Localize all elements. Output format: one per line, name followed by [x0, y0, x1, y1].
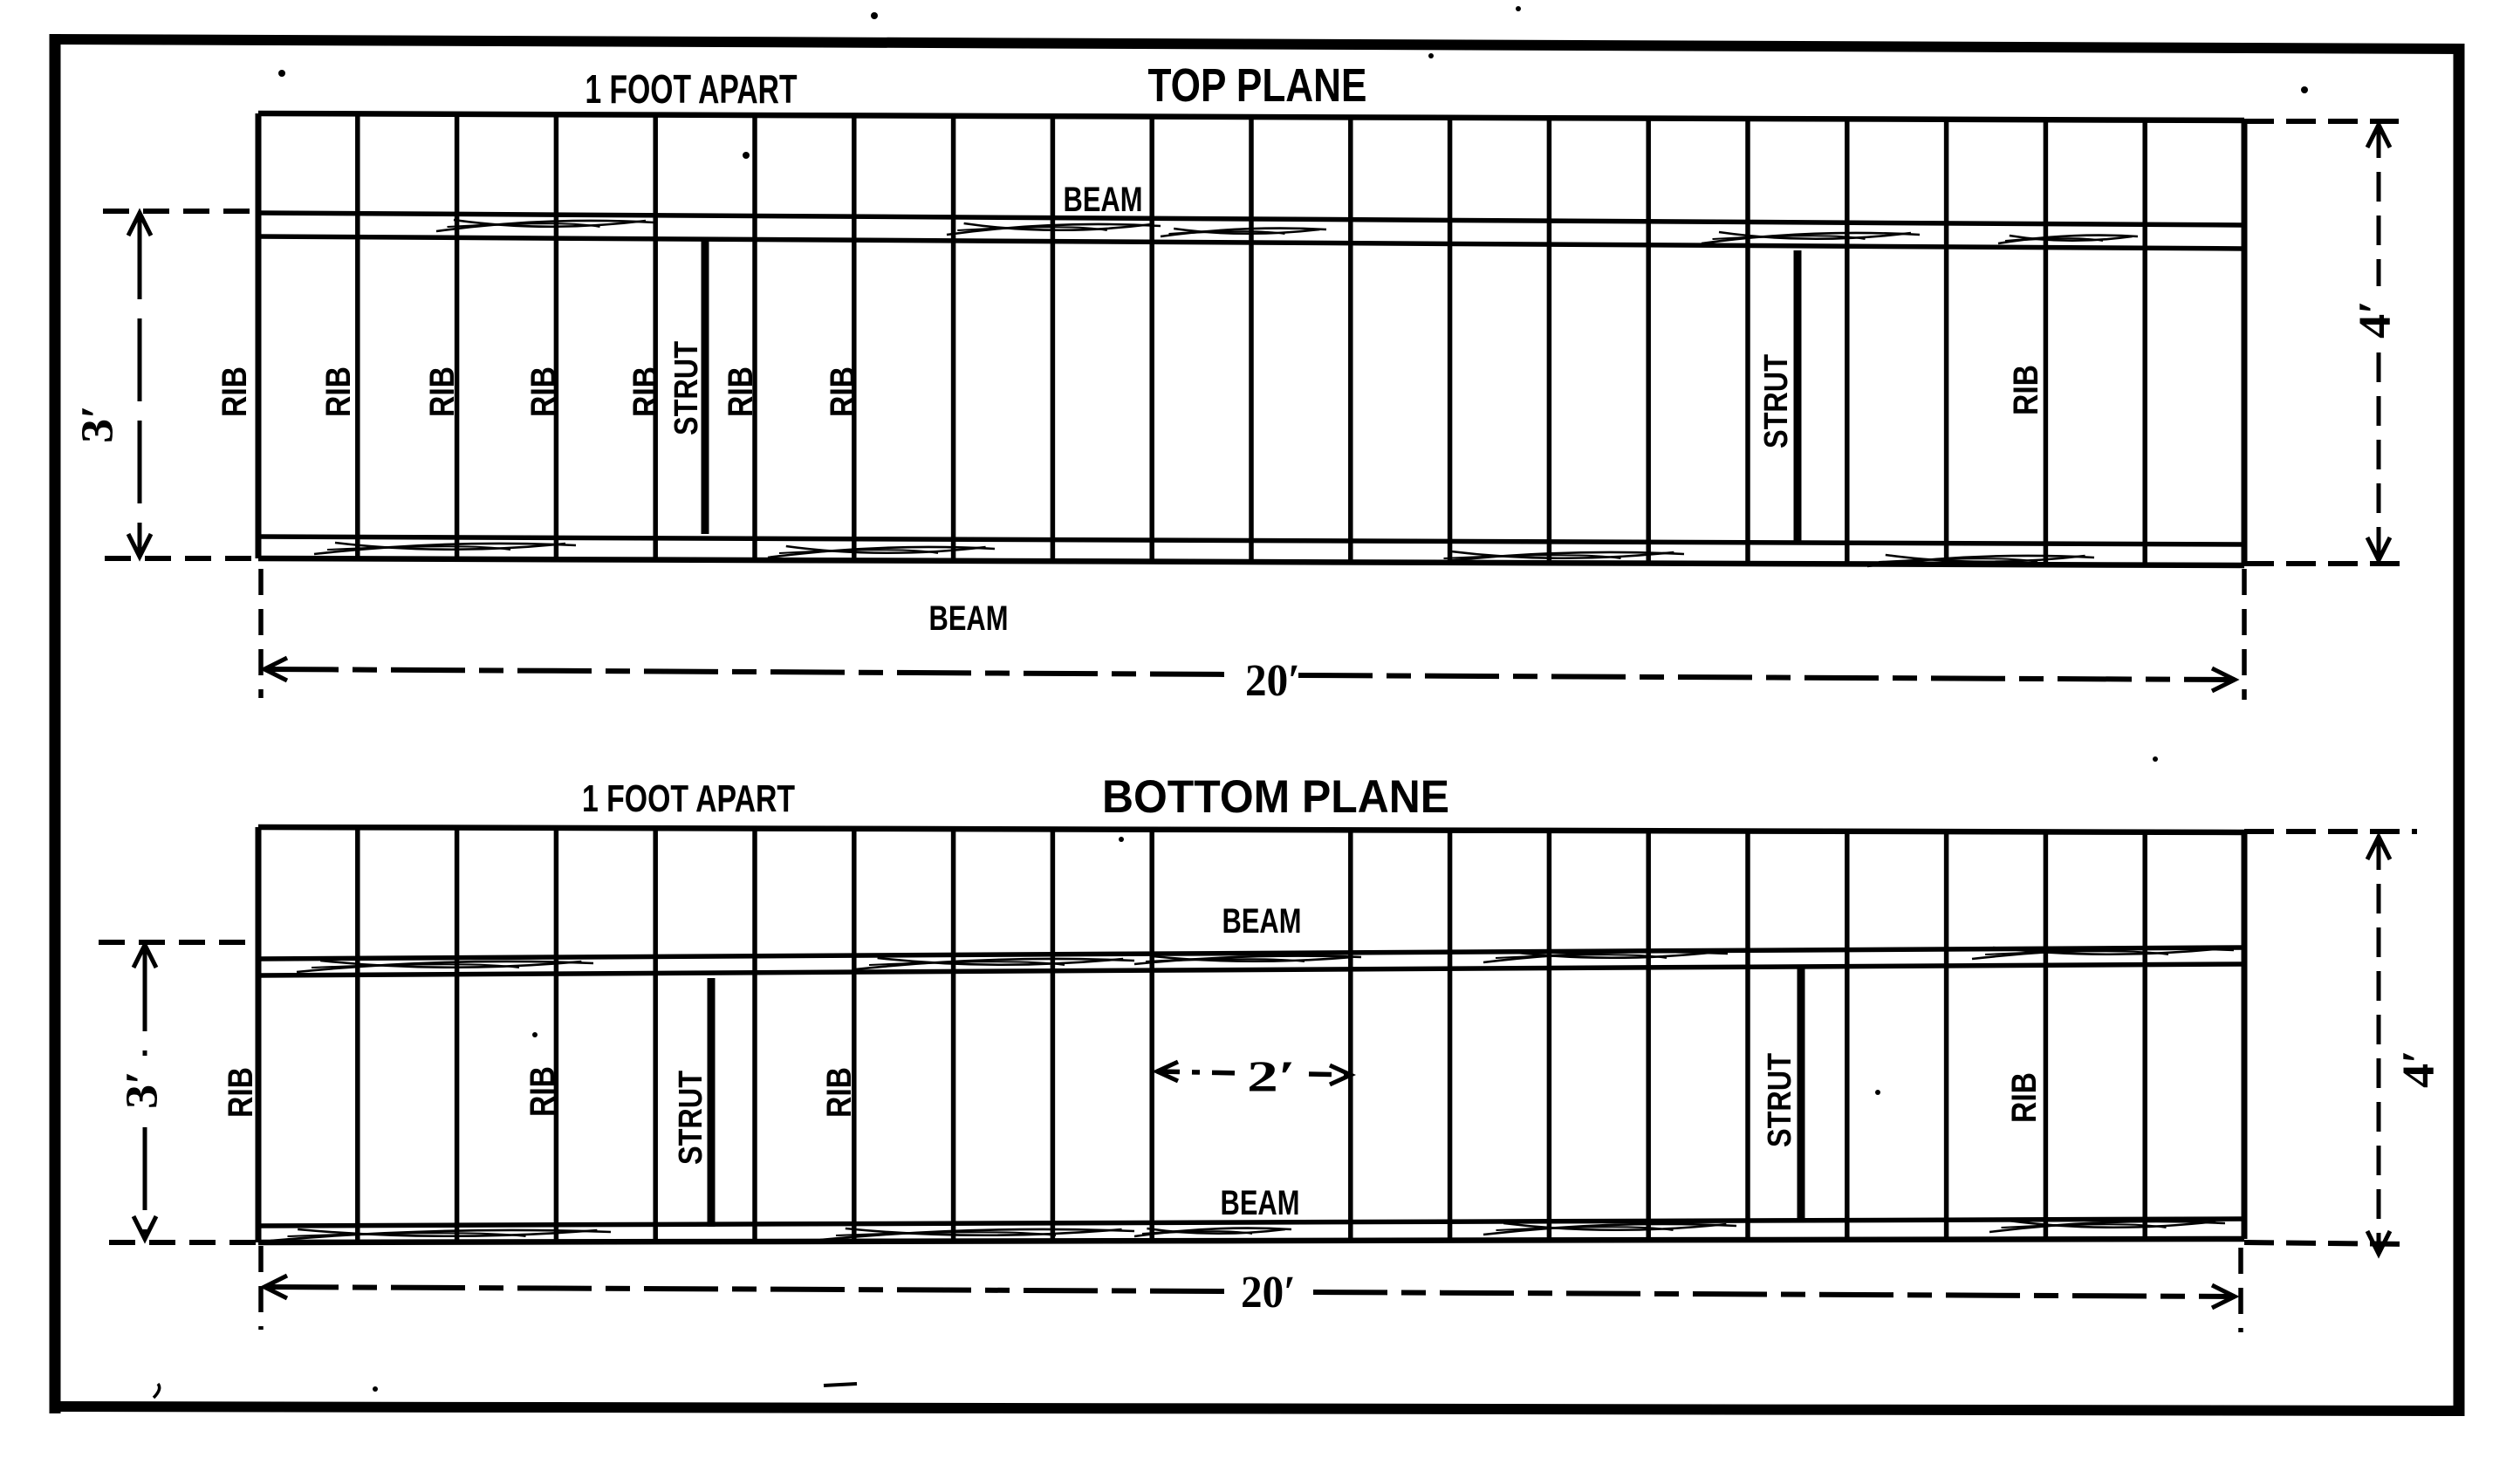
svg-text:RIB: RIB — [524, 366, 563, 417]
svg-text:4′: 4′ — [2394, 1050, 2444, 1088]
svg-text:2′: 2′ — [1247, 1051, 1296, 1100]
svg-text:STRUT: STRUT — [1758, 354, 1795, 448]
svg-text:BOTTOM PLANE: BOTTOM PLANE — [1102, 771, 1449, 823]
svg-text:RIB: RIB — [722, 366, 760, 417]
svg-text:BEAM: BEAM — [1064, 181, 1143, 219]
svg-text:1 FOOT APART: 1 FOOT APART — [585, 66, 798, 112]
svg-text:RIB: RIB — [627, 366, 665, 417]
svg-text:20′: 20′ — [1241, 1268, 1296, 1317]
svg-text:RIB: RIB — [2005, 1072, 2044, 1123]
svg-text:4′: 4′ — [2351, 300, 2400, 339]
svg-text:3′: 3′ — [73, 405, 123, 443]
svg-text:RIB: RIB — [820, 1067, 859, 1118]
svg-text:20′: 20′ — [1245, 656, 1300, 706]
svg-text:STRUT: STRUT — [673, 1071, 709, 1165]
svg-text:RIB: RIB — [319, 366, 358, 417]
svg-text:BEAM: BEAM — [1221, 1184, 1300, 1222]
svg-text:STRUT: STRUT — [668, 341, 705, 435]
svg-text:3′: 3′ — [118, 1071, 168, 1109]
svg-text:RIB: RIB — [222, 1067, 260, 1118]
svg-text:1 FOOT APART: 1 FOOT APART — [582, 777, 795, 820]
svg-text:TOP PLANE: TOP PLANE — [1148, 59, 1367, 112]
svg-text:RIB: RIB — [524, 1066, 562, 1117]
svg-text:RIB: RIB — [2007, 365, 2045, 415]
svg-text:BEAM: BEAM — [1222, 902, 1302, 941]
svg-text:RIB: RIB — [216, 366, 254, 417]
svg-text:BEAM: BEAM — [929, 599, 1009, 638]
svg-text:RIB: RIB — [423, 366, 462, 417]
svg-text:STRUT: STRUT — [1762, 1053, 1798, 1147]
svg-text:RIB: RIB — [824, 366, 862, 417]
